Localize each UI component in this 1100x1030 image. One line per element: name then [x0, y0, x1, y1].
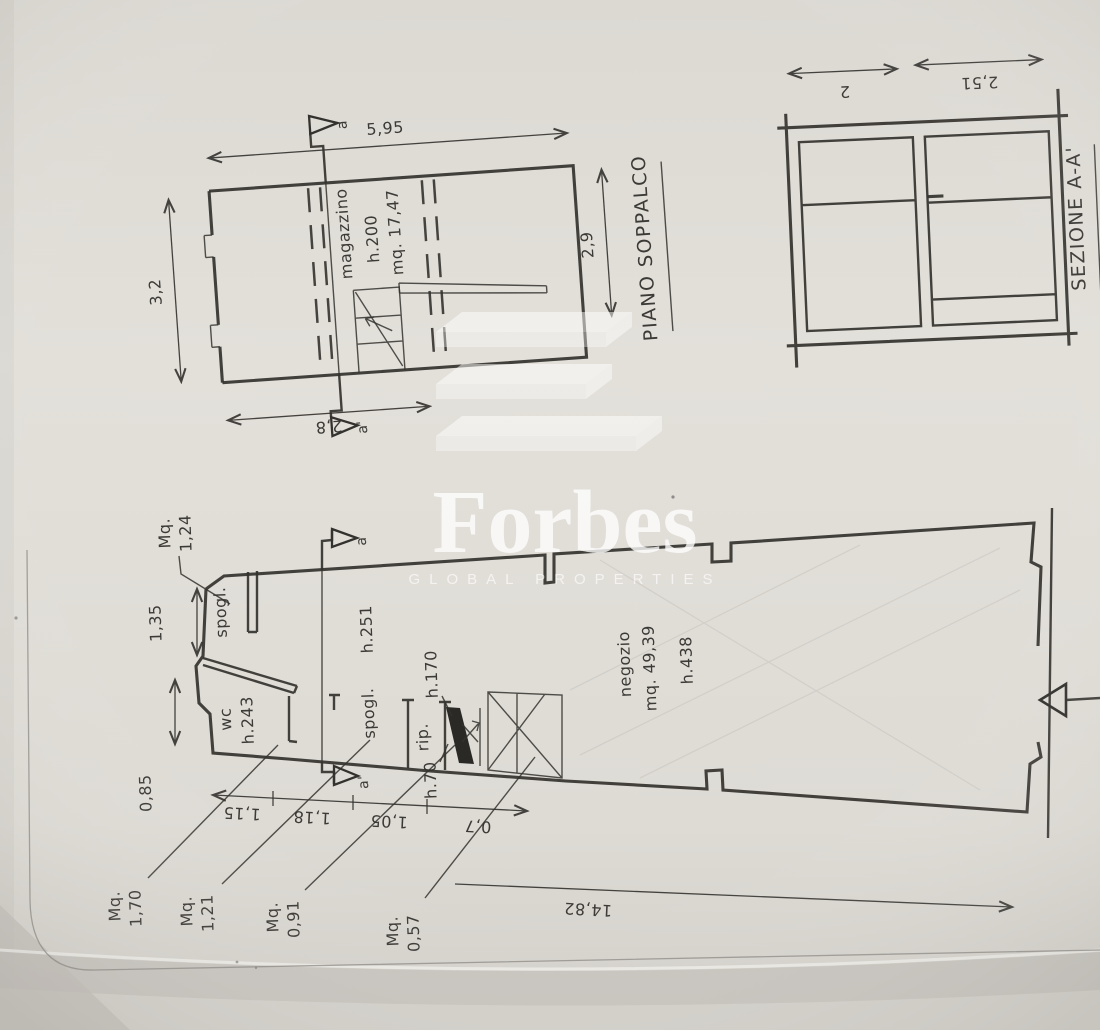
floorplan-drawing: a a' magazzino h.200 mq. 17,47 5,95 3,2 …: [0, 0, 1100, 1030]
scan-vignette: [0, 0, 1100, 1030]
scanned-floorplan-page: a a' magazzino h.200 mq. 17,47 5,95 3,2 …: [0, 0, 1100, 1030]
